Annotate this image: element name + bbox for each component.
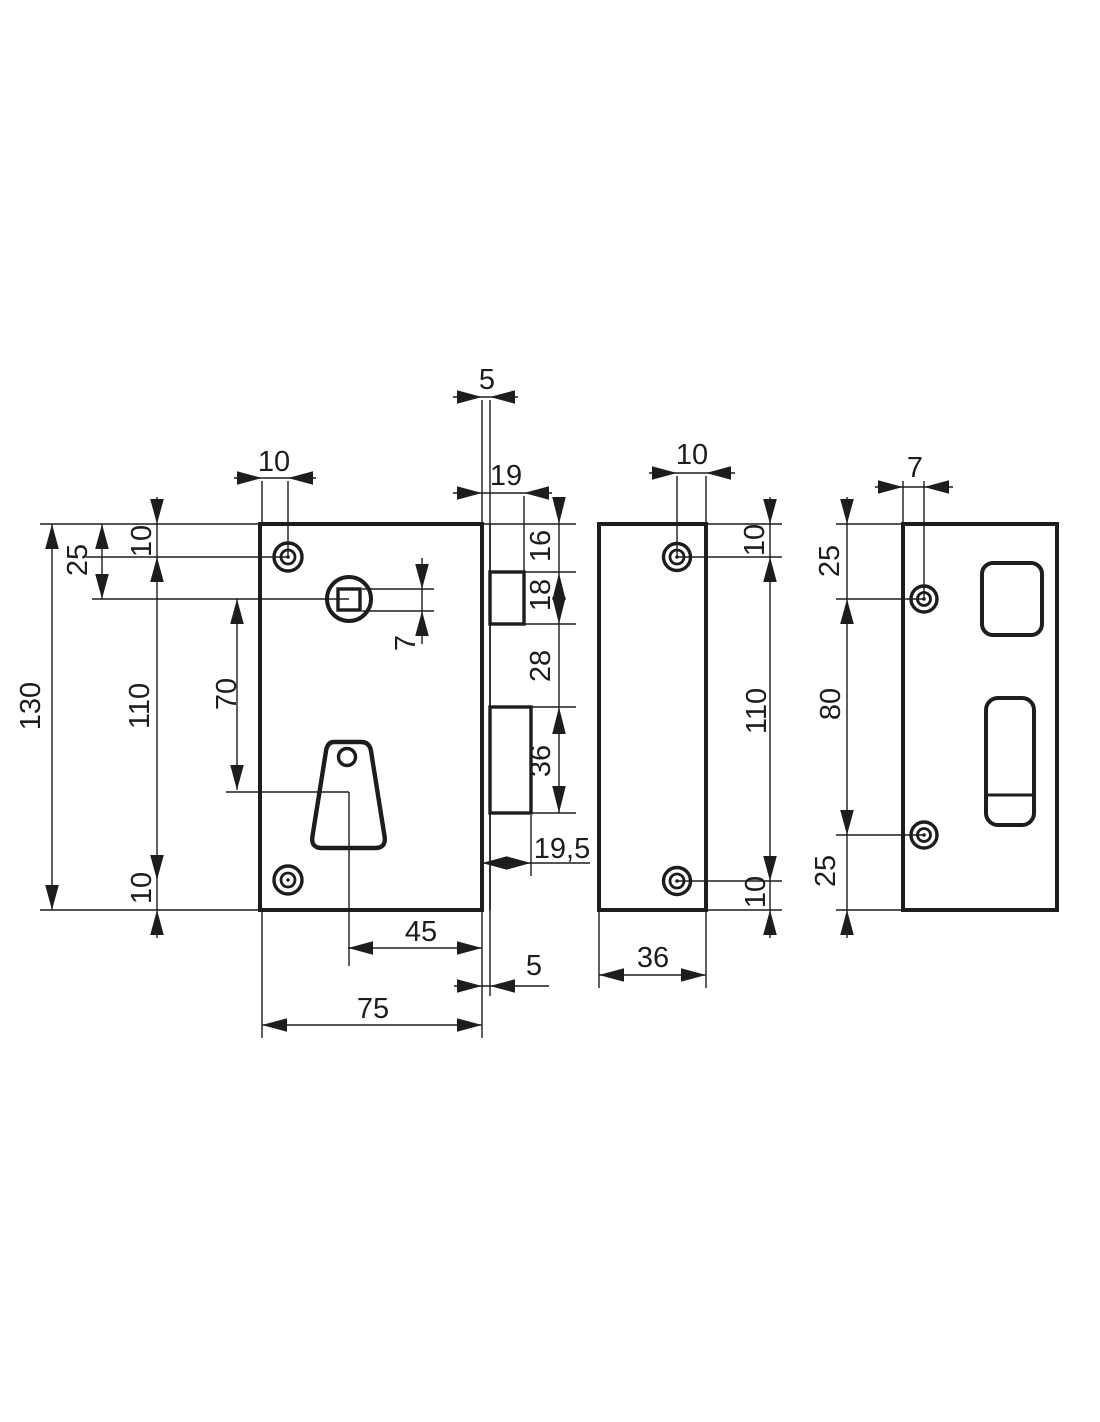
dim-label-front-bolt-height: 36 xyxy=(525,745,557,777)
back-view xyxy=(903,524,1057,910)
dim-label-front-latch-to-bolt: 28 xyxy=(525,650,557,682)
dim-label-front-screw-inset-top: 10 xyxy=(258,446,290,478)
dim-label-edge-top-to-screw: 10 xyxy=(739,524,771,556)
dim-label-front-top-to-screw: 10 xyxy=(126,525,158,557)
dim-label-back-screw-spacing: 80 xyxy=(815,688,847,720)
dim-label-edge-screw-spacing: 110 xyxy=(741,688,773,734)
dim-label-front-bottom-to-screw: 10 xyxy=(126,872,158,904)
dim-label-front-screw-spacing: 110 xyxy=(124,683,156,729)
front-view xyxy=(260,524,531,910)
keyhole-slot xyxy=(986,698,1034,825)
front-view-body xyxy=(260,524,482,910)
dim-label-front-top-to-spindle: 25 xyxy=(62,544,94,576)
dim-label-edge-depth: 36 xyxy=(637,942,669,974)
dim-label-front-faceplate-offset-bottom: 5 xyxy=(526,950,542,982)
lock-dimension-drawing: 10 5 19 19,5 45 5 75 10 36 7 130 25 10 1… xyxy=(0,0,1100,1422)
dim-label-front-top-to-latch: 16 xyxy=(525,530,557,562)
dim-label-front-keyhole-to-face: 45 xyxy=(405,916,437,948)
dim-label-front-faceplate-offset-top: 5 xyxy=(479,364,495,396)
technical-drawing-page: 10 5 19 19,5 45 5 75 10 36 7 130 25 10 1… xyxy=(0,0,1100,1422)
spindle-square-opening xyxy=(982,563,1042,635)
dim-label-edge-screw-inset: 10 xyxy=(676,439,708,471)
dim-label-back-screw-inset: 7 xyxy=(907,452,923,484)
dim-label-front-body-height: 130 xyxy=(15,682,47,730)
dimension-labels: 10 5 19 19,5 45 5 75 10 36 7 130 25 10 1… xyxy=(15,364,923,1025)
latch-bolt xyxy=(490,572,524,624)
dim-label-front-spindle-square: 7 xyxy=(390,635,422,651)
screw-hole-front-bottom xyxy=(274,866,302,894)
dim-label-edge-bottom-to-screw: 10 xyxy=(740,876,772,908)
dim-label-front-latch-height: 18 xyxy=(525,579,557,611)
dim-label-front-body-width: 75 xyxy=(357,993,389,1025)
edge-view xyxy=(599,524,706,910)
dim-label-back-bottom-to-screw: 25 xyxy=(810,855,842,887)
keyhole-cover-pivot xyxy=(339,749,356,766)
dim-label-front-bolt-projection: 19,5 xyxy=(534,833,590,865)
dim-label-back-top-to-screw: 25 xyxy=(814,545,846,577)
dim-label-front-spindle-to-keyhole: 70 xyxy=(211,678,243,710)
edge-view-body xyxy=(599,524,706,910)
dim-label-front-latch-projection: 19 xyxy=(490,460,522,492)
